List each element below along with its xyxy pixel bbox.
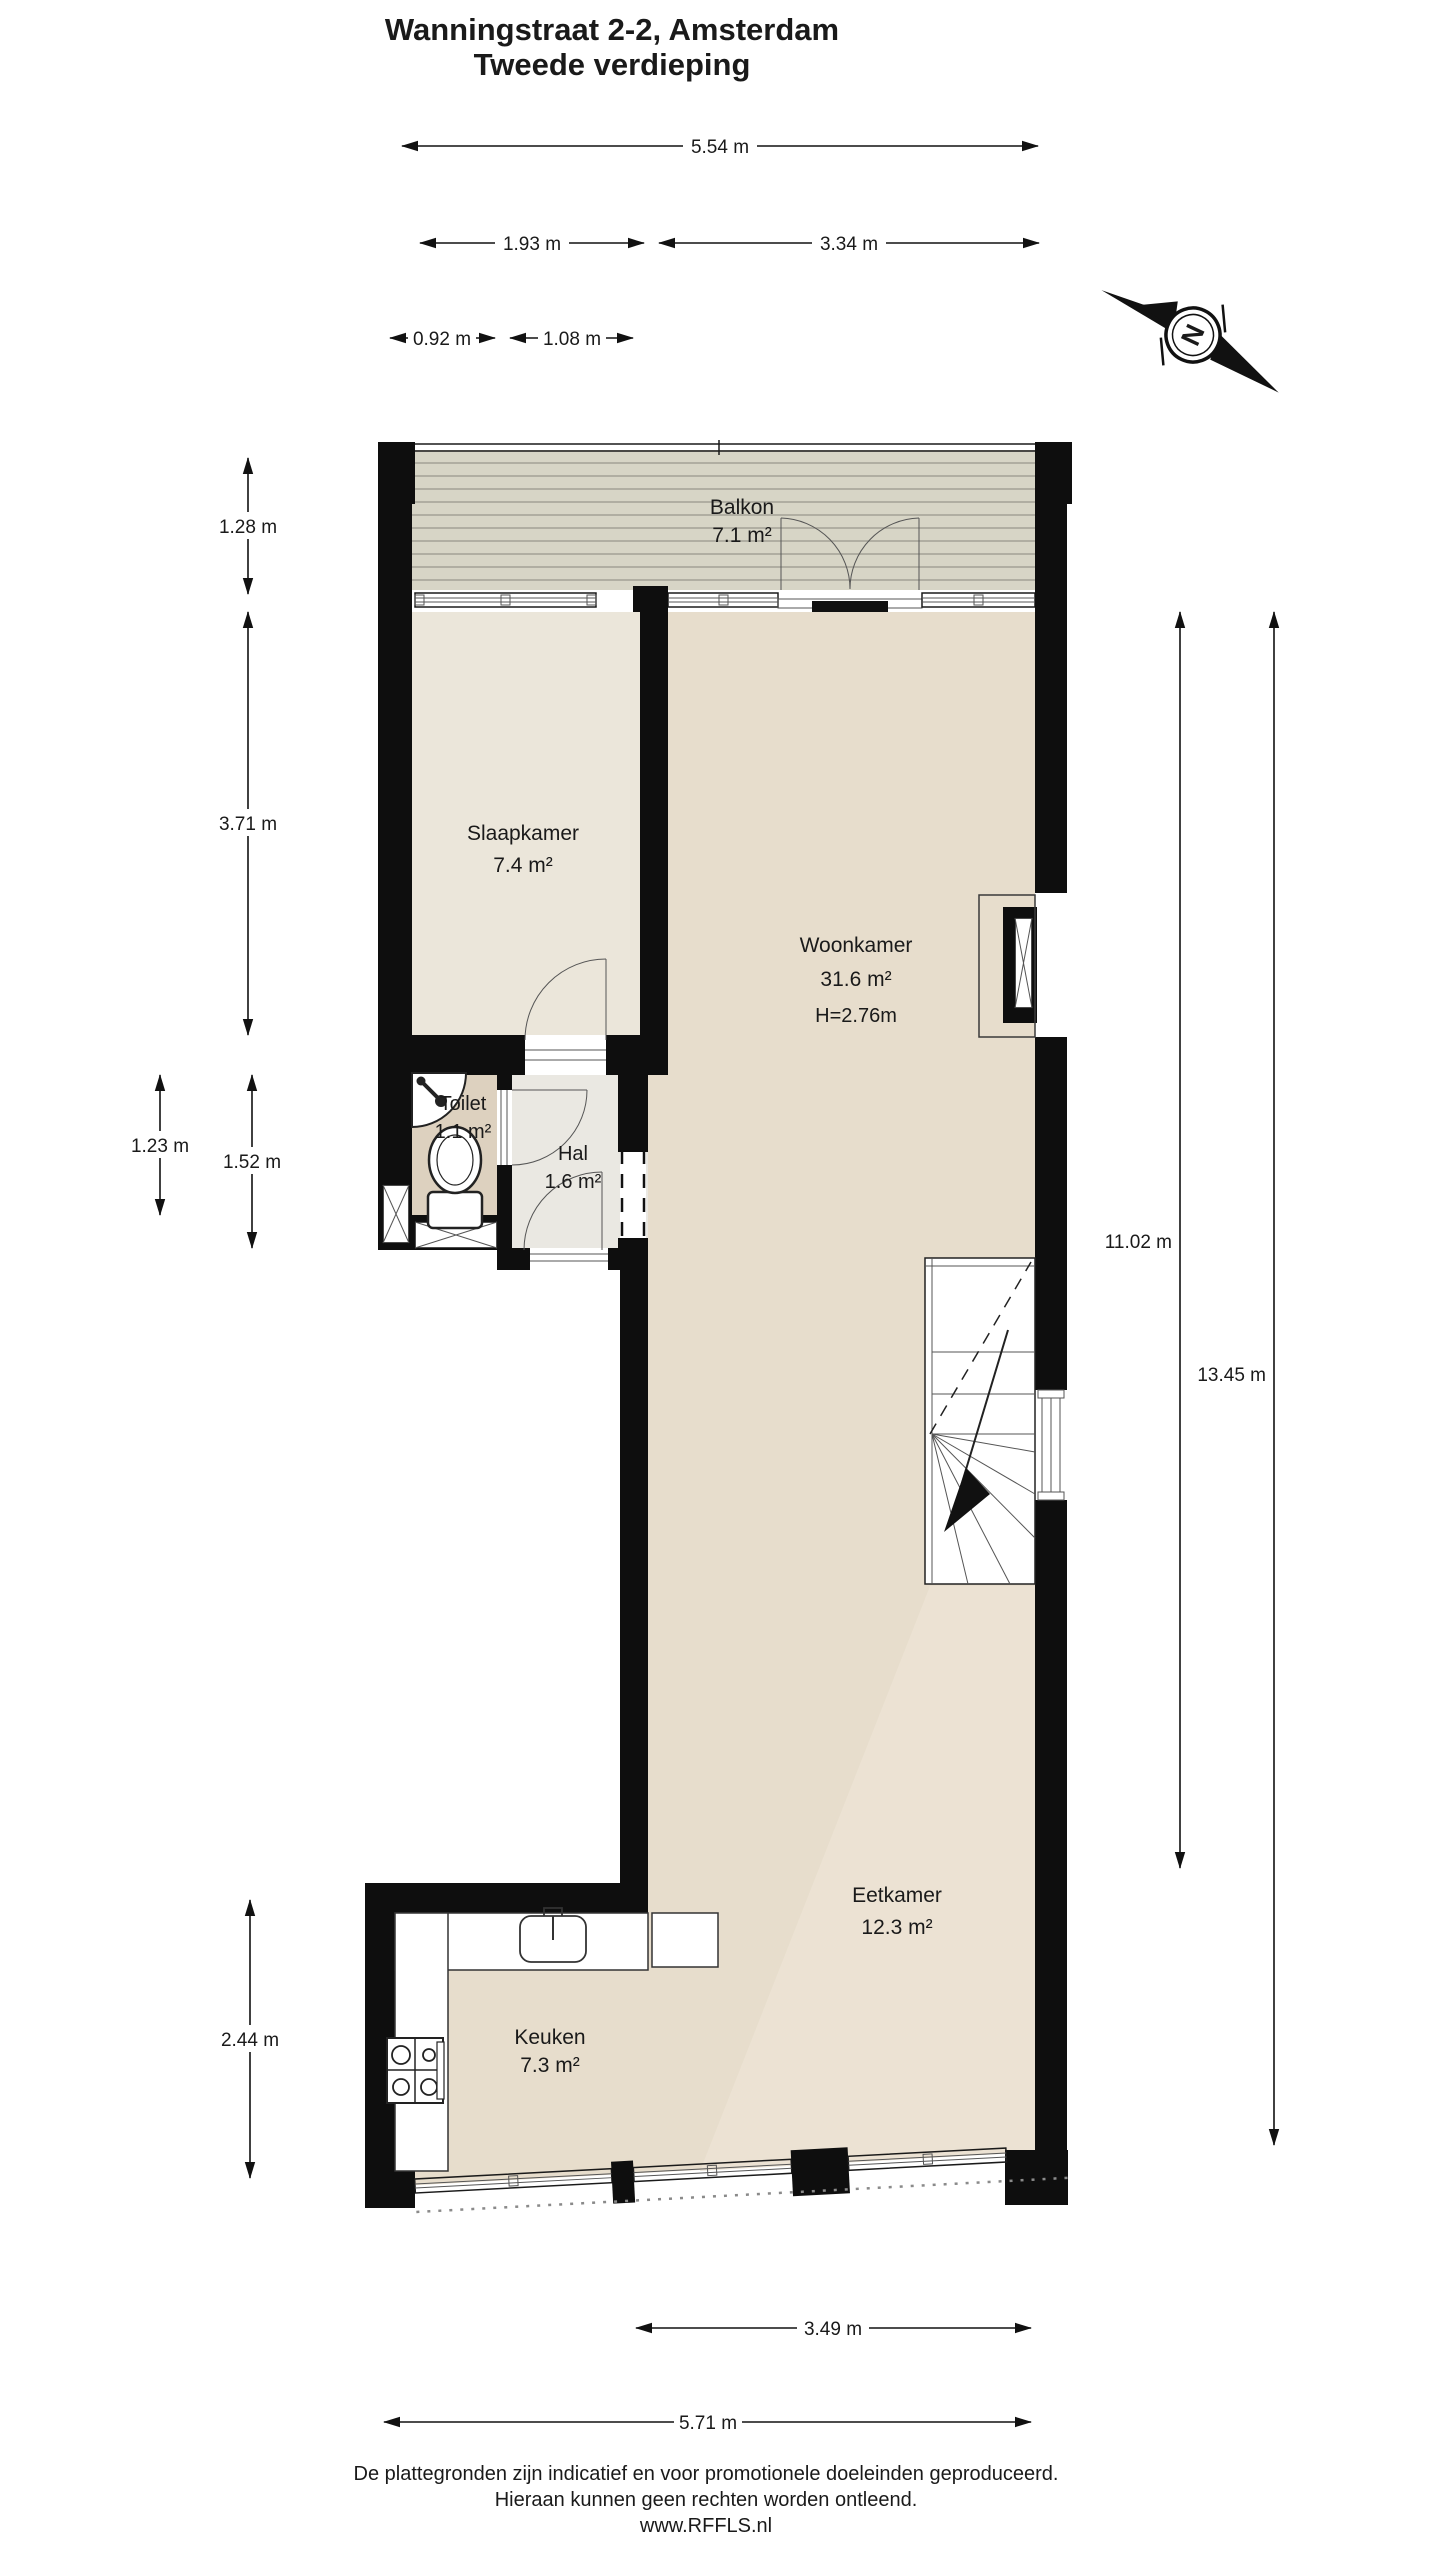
dining-counter bbox=[652, 1913, 718, 1967]
svg-text:1.08 m: 1.08 m bbox=[543, 329, 601, 350]
stove-icon bbox=[387, 2038, 444, 2103]
title-address: Wanningstraat 2-2, Amsterdam bbox=[385, 12, 839, 47]
label-hal-area: 1.6 m² bbox=[545, 1171, 602, 1193]
floorplan-svg: Wanningstraat 2-2, Amsterdam Tweede verd… bbox=[0, 0, 1440, 2560]
label-slaapkamer-area: 7.4 m² bbox=[493, 854, 553, 877]
dim-bottom-total: 5.71 m bbox=[384, 2408, 1031, 2435]
facade-post-1 bbox=[611, 2161, 635, 2204]
compass-north-icon: N bbox=[1084, 256, 1303, 415]
label-slaapkamer: Slaapkamer bbox=[467, 822, 579, 845]
dim-top-small-left: 0.92 m bbox=[390, 324, 495, 351]
dim-left-kitchen: 2.44 m bbox=[214, 1900, 286, 2178]
label-keuken-area: 7.3 m² bbox=[520, 2054, 580, 2077]
hall-living-opening bbox=[620, 1150, 646, 1240]
svg-text:0.92 m: 0.92 m bbox=[413, 329, 471, 350]
page-title: Wanningstraat 2-2, Amsterdam Tweede verd… bbox=[385, 12, 839, 82]
label-woonkamer: Woonkamer bbox=[800, 934, 913, 957]
label-woonkamer-area: 31.6 m² bbox=[820, 968, 891, 991]
floorplan-page: Wanningstraat 2-2, Amsterdam Tweede verd… bbox=[0, 0, 1440, 2560]
label-hal: Hal bbox=[558, 1143, 588, 1165]
dim-left-balcony: 1.28 m bbox=[212, 458, 284, 594]
dim-bottom-inner: 3.49 m bbox=[636, 2314, 1031, 2341]
dim-top-right: 3.34 m bbox=[659, 229, 1039, 256]
svg-text:13.45 m: 13.45 m bbox=[1197, 1365, 1266, 1386]
stair-window bbox=[1035, 1390, 1067, 1500]
svg-text:5.71 m: 5.71 m bbox=[679, 2413, 737, 2434]
svg-text:2.44 m: 2.44 m bbox=[221, 2030, 279, 2051]
title-floor: Tweede verdieping bbox=[474, 47, 751, 82]
footer-line-1: De plattegronden zijn indicatief en voor… bbox=[354, 2463, 1059, 2485]
label-eetkamer: Eetkamer bbox=[852, 1884, 942, 1907]
dim-left-bedroom: 3.71 m bbox=[212, 612, 284, 1035]
label-balkon-area: 7.1 m² bbox=[712, 524, 772, 547]
svg-text:5.54 m: 5.54 m bbox=[691, 137, 749, 158]
svg-text:1.52 m: 1.52 m bbox=[223, 1152, 281, 1173]
label-toilet: Toilet bbox=[440, 1093, 487, 1115]
dim-top-total: 5.54 m bbox=[402, 132, 1038, 159]
balcony-floor bbox=[412, 450, 1035, 590]
label-woonkamer-height: H=2.76m bbox=[815, 1005, 897, 1027]
footer-website: www.RFFLS.nl bbox=[639, 2515, 772, 2537]
footer-disclaimer: De plattegronden zijn indicatief en voor… bbox=[354, 2463, 1059, 2537]
svg-text:1.93 m: 1.93 m bbox=[503, 234, 561, 255]
label-keuken: Keuken bbox=[514, 2026, 585, 2049]
svg-text:3.49 m: 3.49 m bbox=[804, 2319, 862, 2340]
dim-top-left: 1.93 m bbox=[420, 229, 644, 256]
label-eetkamer-area: 12.3 m² bbox=[861, 1916, 932, 1939]
dim-left-hall: 1.52 m bbox=[216, 1075, 288, 1248]
kitchen-sink-icon bbox=[520, 1908, 586, 1962]
dim-right-outer: 13.45 m bbox=[1197, 612, 1274, 2145]
svg-text:1.28 m: 1.28 m bbox=[219, 517, 277, 538]
label-toilet-area: 1.1 m² bbox=[435, 1121, 492, 1143]
dim-left-toilet: 1.23 m bbox=[124, 1075, 196, 1215]
label-balkon: Balkon bbox=[710, 496, 774, 519]
facade-post-2 bbox=[791, 2147, 850, 2196]
staircase bbox=[925, 1258, 1035, 1584]
svg-text:11.02 m: 11.02 m bbox=[1105, 1232, 1172, 1253]
svg-text:3.71 m: 3.71 m bbox=[219, 814, 277, 835]
dim-right-inner: 11.02 m bbox=[1105, 612, 1180, 1868]
svg-text:1.23 m: 1.23 m bbox=[131, 1136, 189, 1157]
footer-line-2: Hieraan kunnen geen rechten worden ontle… bbox=[495, 2489, 918, 2511]
dim-top-small-right: 1.08 m bbox=[510, 324, 633, 351]
svg-text:3.34 m: 3.34 m bbox=[820, 234, 878, 255]
